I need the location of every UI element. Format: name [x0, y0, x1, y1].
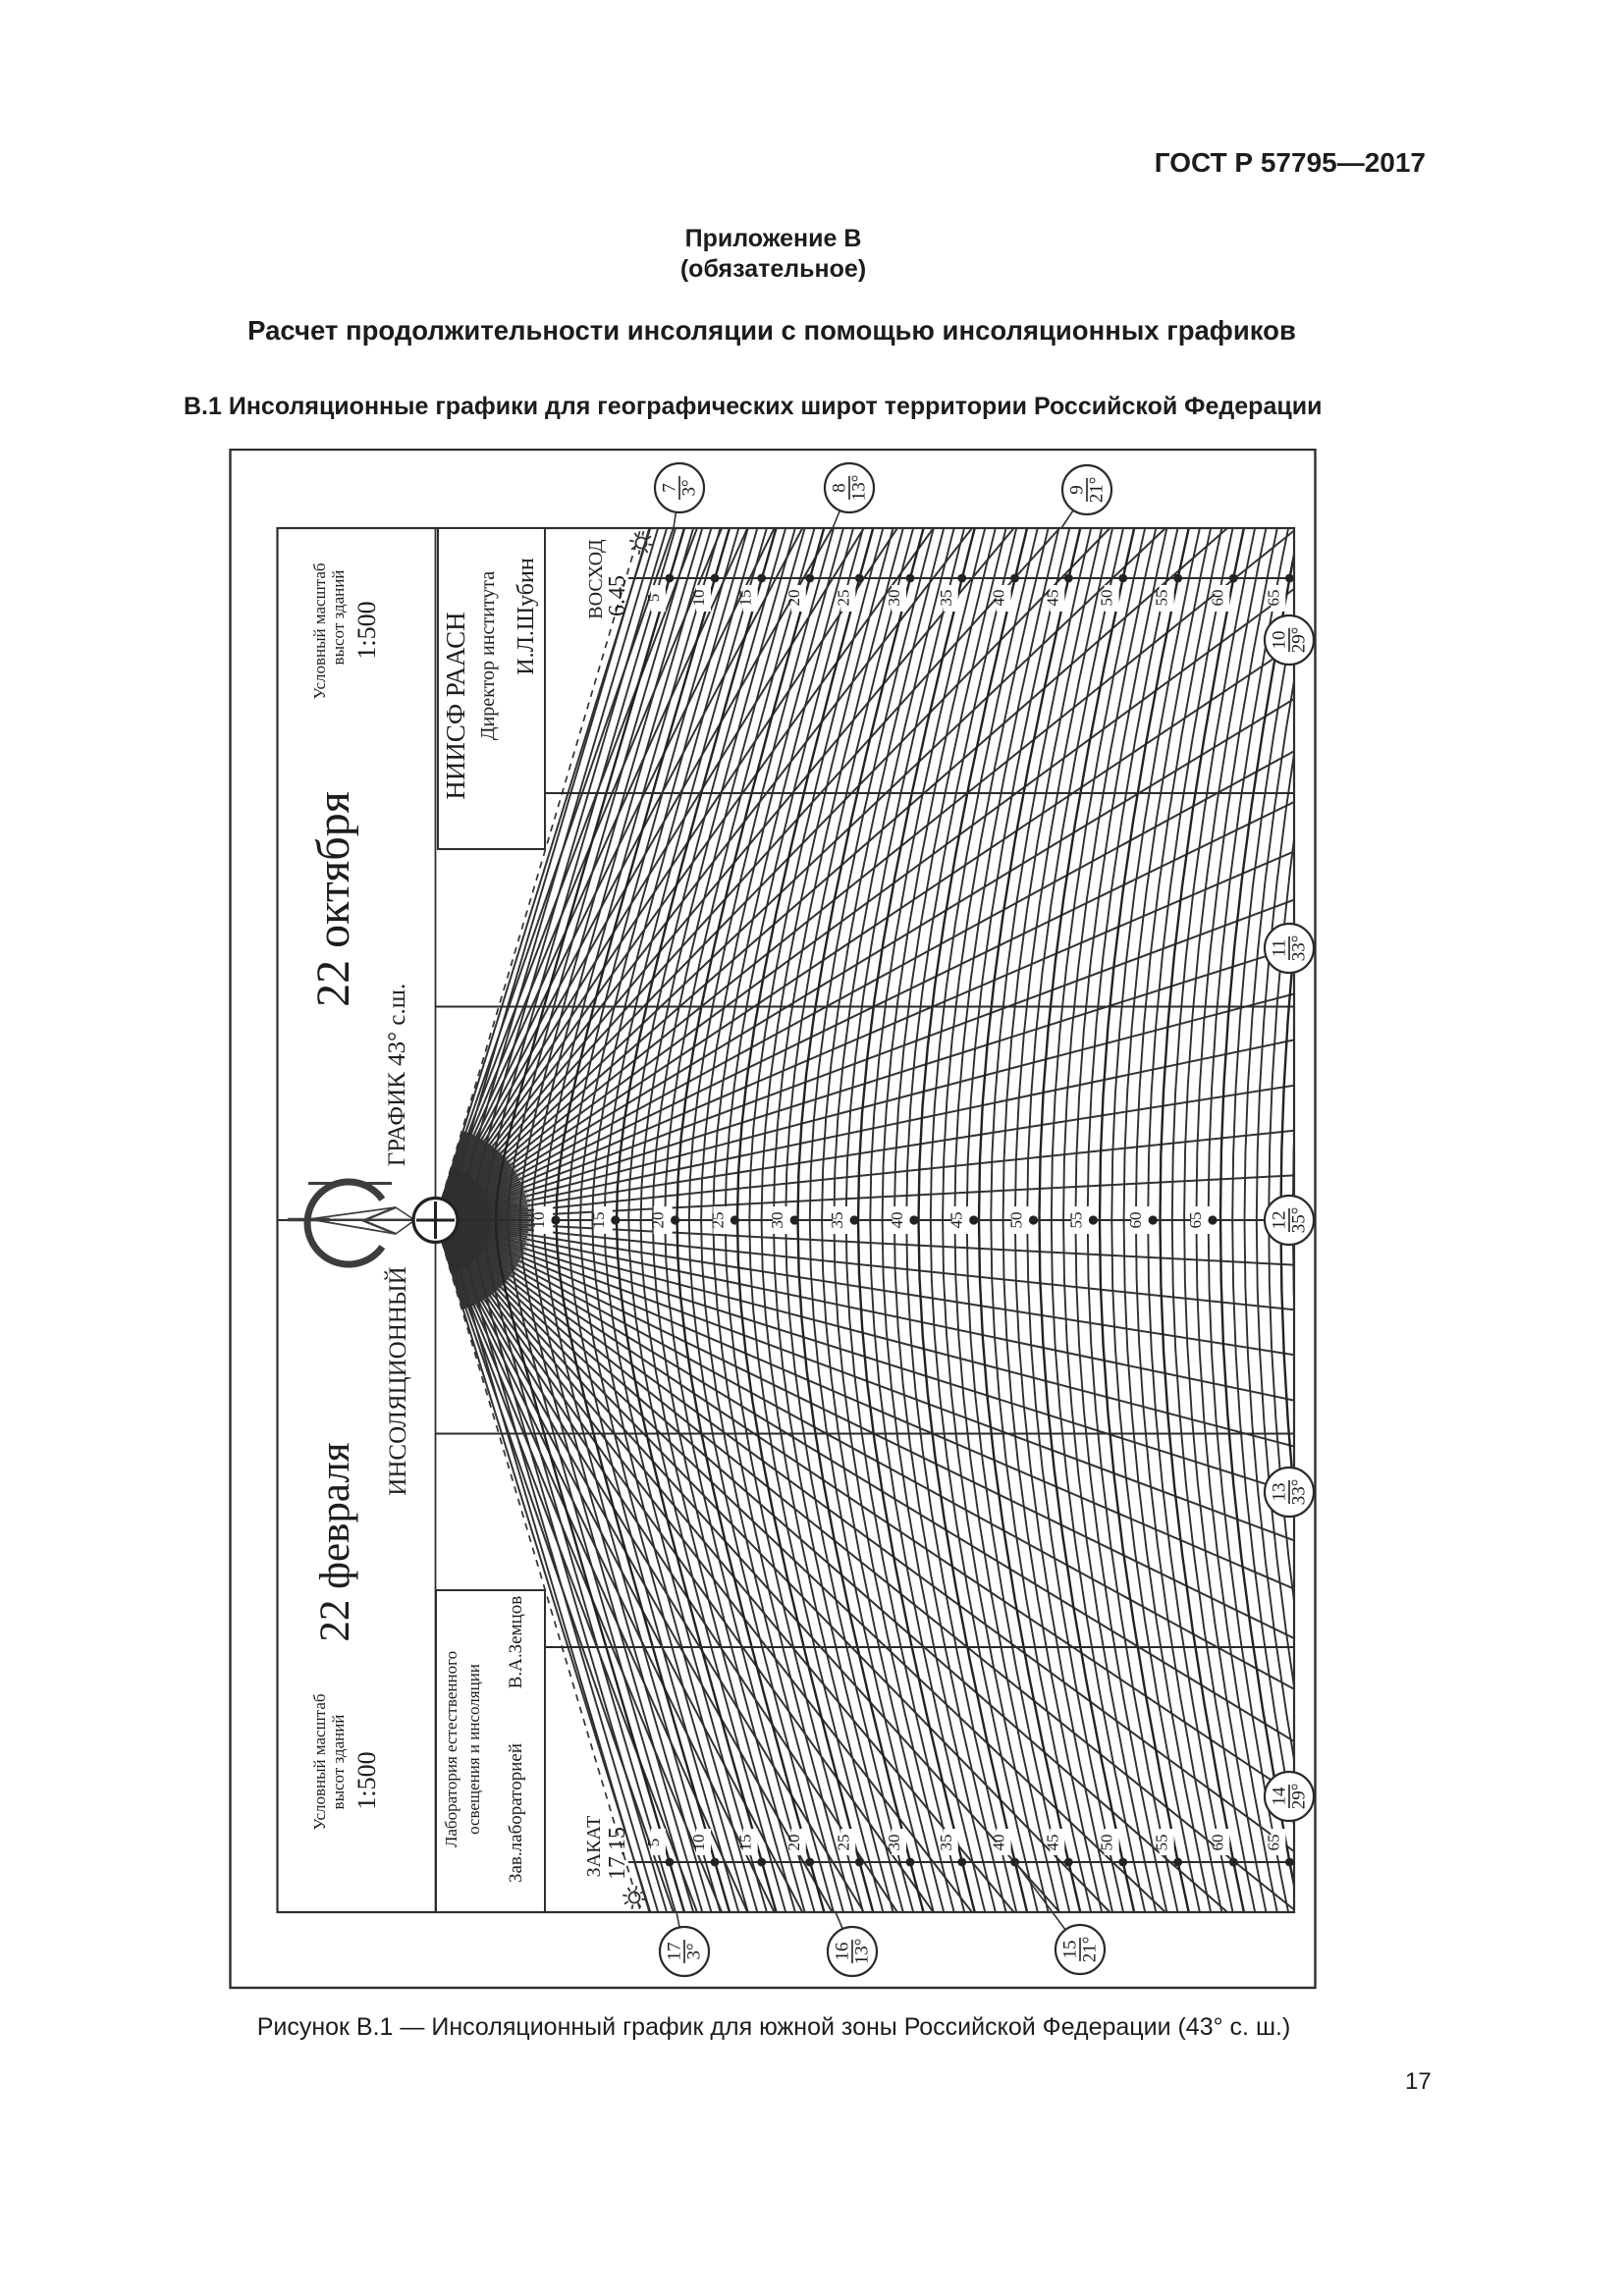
- svg-text:ГРАФИК 43° с.ш.: ГРАФИК 43° с.ш.: [384, 984, 410, 1166]
- svg-text:50: 50: [1098, 590, 1116, 607]
- svg-text:15: 15: [589, 1212, 608, 1229]
- svg-text:НИИСФ РААСН: НИИСФ РААСН: [441, 612, 470, 799]
- svg-text:11: 11: [1270, 939, 1290, 957]
- svg-text:5: 5: [644, 594, 663, 603]
- svg-text:35°: 35°: [1289, 1207, 1310, 1234]
- svg-text:30: 30: [768, 1212, 786, 1229]
- svg-text:3°: 3°: [679, 479, 700, 496]
- svg-text:29°: 29°: [1289, 627, 1310, 654]
- svg-text:20: 20: [785, 590, 803, 607]
- svg-text:40: 40: [990, 590, 1008, 607]
- svg-text:В.А.Земцов: В.А.Земцов: [506, 1596, 526, 1689]
- svg-text:40: 40: [990, 1835, 1008, 1851]
- svg-text:Лаборатория естественного: Лаборатория естественного: [442, 1651, 460, 1847]
- svg-text:25: 25: [708, 1212, 727, 1229]
- svg-text:45: 45: [1043, 1835, 1061, 1851]
- svg-text:60: 60: [1126, 1212, 1145, 1229]
- svg-text:ИНСОЛЯЦИОННЫЙ: ИНСОЛЯЦИОННЫЙ: [384, 1266, 411, 1495]
- svg-text:29°: 29°: [1289, 1784, 1310, 1810]
- svg-text:ЗАКАТ: ЗАКАТ: [583, 1816, 605, 1878]
- svg-text:9: 9: [1067, 485, 1088, 495]
- svg-text:21°: 21°: [1087, 477, 1108, 504]
- svg-text:33°: 33°: [1289, 935, 1310, 962]
- svg-text:35: 35: [937, 1835, 955, 1851]
- svg-text:10: 10: [689, 590, 708, 607]
- svg-text:65: 65: [1186, 1212, 1205, 1229]
- svg-text:12: 12: [1270, 1211, 1290, 1230]
- svg-text:17.15: 17.15: [605, 1827, 630, 1880]
- svg-text:55: 55: [1153, 590, 1171, 607]
- svg-text:15: 15: [1060, 1941, 1081, 1959]
- svg-text:10: 10: [689, 1835, 708, 1851]
- svg-text:21°: 21°: [1080, 1937, 1101, 1963]
- svg-text:8: 8: [830, 483, 850, 493]
- svg-text:30: 30: [885, 590, 903, 607]
- svg-text:15: 15: [736, 590, 755, 607]
- svg-text:45: 45: [947, 1212, 966, 1229]
- svg-text:20: 20: [649, 1212, 668, 1229]
- svg-text:Условный масштаб: Условный масштаб: [310, 562, 329, 699]
- svg-text:Директор института: Директор института: [477, 571, 499, 740]
- svg-text:60: 60: [1208, 1835, 1226, 1851]
- svg-text:60: 60: [1208, 590, 1226, 607]
- svg-text:освещения и инсоляции: освещения и инсоляции: [464, 1664, 483, 1835]
- svg-text:25: 25: [834, 590, 852, 607]
- svg-text:55: 55: [1153, 1835, 1171, 1851]
- svg-text:13°: 13°: [852, 1939, 873, 1965]
- svg-text:50: 50: [1098, 1835, 1116, 1851]
- svg-text:1:500: 1:500: [352, 601, 381, 659]
- svg-text:33°: 33°: [1289, 1479, 1310, 1506]
- svg-text:35: 35: [937, 590, 955, 607]
- svg-text:17: 17: [665, 1943, 685, 1961]
- svg-text:Условный масштаб: Условный масштаб: [310, 1693, 329, 1830]
- svg-text:Зав.лабораторией: Зав.лабораторией: [506, 1743, 526, 1883]
- svg-text:высот зданий: высот зданий: [329, 570, 348, 666]
- svg-text:ВОСХОД: ВОСХОД: [585, 539, 607, 619]
- svg-text:6.45: 6.45: [605, 575, 630, 616]
- svg-text:45: 45: [1043, 590, 1061, 607]
- svg-text:5: 5: [644, 1839, 663, 1847]
- svg-text:3°: 3°: [684, 1943, 705, 1959]
- svg-text:10: 10: [529, 1212, 548, 1229]
- svg-text:22 февраля: 22 февраля: [312, 1442, 358, 1641]
- svg-text:7: 7: [660, 483, 680, 493]
- svg-text:40: 40: [888, 1212, 906, 1229]
- svg-text:55: 55: [1066, 1212, 1085, 1229]
- svg-text:10: 10: [1270, 631, 1290, 650]
- svg-text:65: 65: [1264, 590, 1282, 607]
- svg-text:13°: 13°: [849, 475, 870, 502]
- svg-text:20: 20: [785, 1835, 803, 1851]
- svg-text:1:500: 1:500: [352, 1751, 381, 1809]
- svg-text:13: 13: [1270, 1483, 1290, 1502]
- svg-text:65: 65: [1264, 1835, 1282, 1851]
- svg-text:15: 15: [736, 1835, 755, 1851]
- svg-text:25: 25: [834, 1835, 852, 1851]
- svg-text:22 октября: 22 октября: [307, 791, 359, 1007]
- svg-text:И.Л.Шубин: И.Л.Шубин: [514, 558, 539, 675]
- svg-text:высот зданий: высот зданий: [329, 1715, 348, 1810]
- svg-text:30: 30: [885, 1835, 903, 1851]
- svg-text:50: 50: [1007, 1212, 1026, 1229]
- svg-text:35: 35: [828, 1212, 846, 1229]
- svg-text:14: 14: [1270, 1787, 1290, 1806]
- svg-text:16: 16: [833, 1943, 853, 1961]
